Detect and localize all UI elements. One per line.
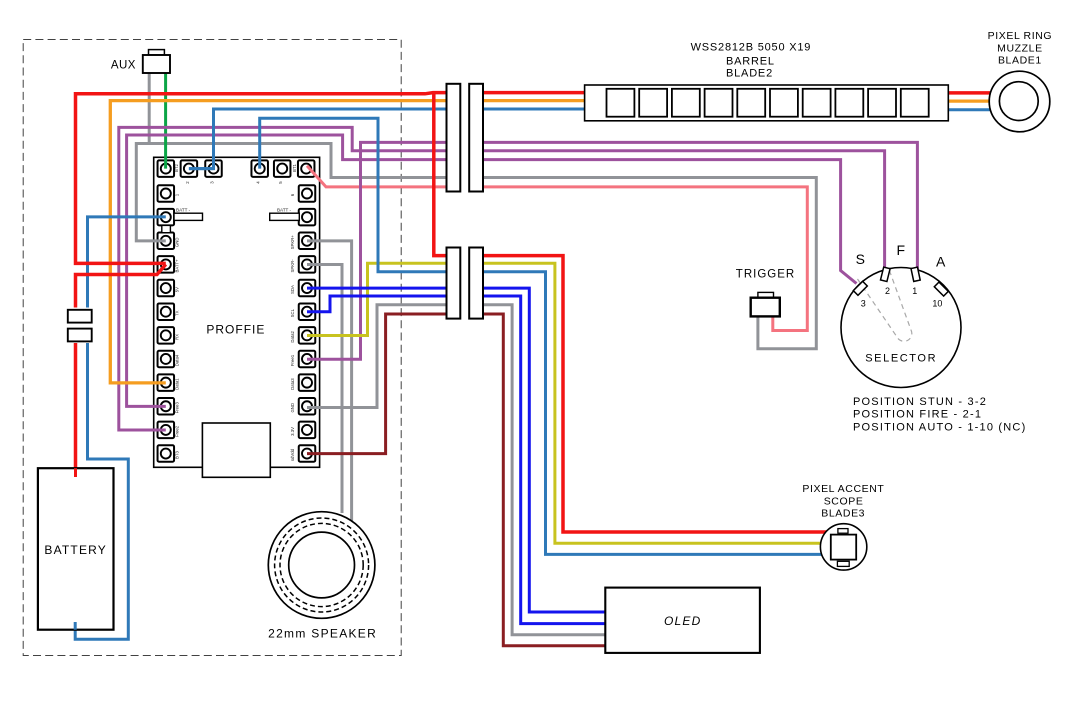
svg-text:SCL: SCL (290, 308, 295, 317)
svg-text:Data2: Data2 (290, 330, 295, 342)
svg-text:TRIGGER: TRIGGER (736, 269, 795, 281)
svg-text:3.3V: 3.3V (290, 427, 295, 436)
svg-text:5V: 5V (175, 287, 180, 292)
svg-text:S: S (856, 251, 865, 267)
svg-text:SELECTOR: SELECTOR (865, 352, 937, 364)
svg-text:TX: TX (175, 310, 180, 316)
svg-text:MUZZLE: MUZZLE (997, 42, 1043, 54)
svg-text:SPKR+: SPKR+ (290, 235, 295, 250)
svg-text:BLADE2: BLADE2 (726, 67, 773, 79)
svg-text:sdVdd: sdVdd (290, 448, 295, 461)
svg-text:10: 10 (932, 299, 942, 309)
svg-text:BLADE1: BLADE1 (998, 54, 1042, 66)
svg-text:Free3: Free3 (175, 402, 180, 414)
svg-text:SDA: SDA (290, 285, 295, 294)
svg-text:22mm SPEAKER: 22mm SPEAKER (268, 627, 377, 641)
svg-text:BATTERY: BATTERY (44, 543, 107, 557)
svg-text:F: F (897, 242, 906, 258)
svg-text:GND: GND (290, 403, 295, 413)
svg-text:BATT+: BATT+ (175, 259, 180, 273)
svg-text:Free2: Free2 (175, 425, 180, 437)
svg-text:POSITION STUN - 3-2: POSITION STUN - 3-2 (853, 396, 987, 408)
svg-text:PIXEL RING: PIXEL RING (988, 30, 1053, 42)
svg-text:SCOPE: SCOPE (824, 495, 864, 507)
svg-text:AUX: AUX (111, 59, 136, 71)
svg-text:BT3: BT3 (175, 450, 180, 458)
svg-text:SPKR-: SPKR- (290, 259, 295, 273)
svg-text:OLED: OLED (664, 614, 701, 628)
svg-text:BT2: BT2 (174, 163, 179, 171)
svg-text:Data4: Data4 (175, 354, 180, 366)
svg-text:BATT -: BATT - (176, 208, 191, 213)
svg-text:POSITION FIRE - 2-1: POSITION FIRE - 2-1 (853, 409, 982, 421)
svg-text:BT1: BT1 (292, 163, 297, 171)
svg-text:BATT -: BATT - (277, 208, 292, 213)
svg-text:Data3: Data3 (290, 378, 295, 390)
svg-text:WSS2812B 5050 X19: WSS2812B 5050 X19 (691, 41, 812, 53)
svg-text:3: 3 (861, 299, 866, 309)
svg-text:BARREL: BARREL (726, 55, 775, 67)
svg-text:Free1: Free1 (290, 354, 295, 366)
svg-text:GND: GND (175, 237, 180, 247)
svg-text:POSITION AUTO - 1-10 (NC): POSITION AUTO - 1-10 (NC) (853, 421, 1026, 433)
svg-text:Data1: Data1 (175, 378, 180, 390)
svg-text:PIXEL ACCENT: PIXEL ACCENT (802, 483, 884, 495)
svg-text:1: 1 (912, 286, 917, 296)
svg-text:RX: RX (175, 334, 180, 340)
svg-text:PROFFIE: PROFFIE (206, 322, 265, 336)
svg-text:2: 2 (885, 286, 890, 296)
svg-text:BLADE3: BLADE3 (821, 507, 865, 519)
svg-text:A: A (936, 254, 946, 270)
